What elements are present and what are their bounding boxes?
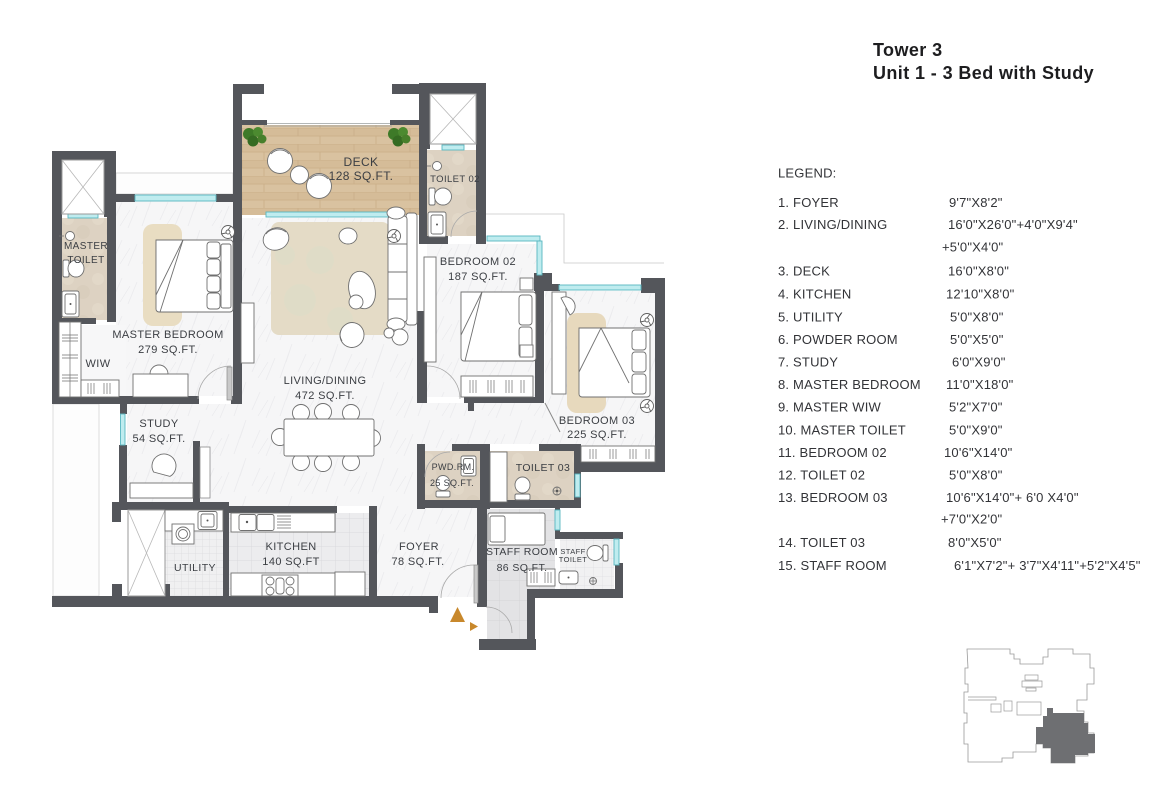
svg-text:TOILET 02: TOILET 02 (430, 174, 480, 185)
svg-text:13. BEDROOM 03: 13. BEDROOM 03 (778, 490, 888, 505)
svg-text:128 SQ.FT.: 128 SQ.FT. (329, 169, 394, 183)
svg-text:140 SQ.FT: 140 SQ.FT (262, 556, 319, 568)
svg-text:78 SQ.FT.: 78 SQ.FT. (391, 556, 444, 568)
svg-text:KITCHEN: KITCHEN (265, 541, 316, 553)
svg-text:5. UTILITY: 5. UTILITY (778, 309, 843, 324)
svg-text:12. TOILET 02: 12. TOILET 02 (778, 467, 865, 482)
svg-text:4. KITCHEN: 4. KITCHEN (778, 287, 852, 302)
svg-text:BEDROOM 03: BEDROOM 03 (559, 415, 635, 427)
svg-text:11'0"X18'0": 11'0"X18'0" (946, 377, 1014, 392)
svg-text:15. STAFF ROOM: 15. STAFF ROOM (778, 558, 887, 573)
svg-text:7. STUDY: 7. STUDY (778, 355, 838, 370)
svg-text:25 SQ.FT.: 25 SQ.FT. (430, 478, 474, 488)
svg-text:5'2"X7'0": 5'2"X7'0" (949, 399, 1003, 414)
svg-text:TOILET: TOILET (559, 555, 588, 564)
svg-text:10. MASTER TOILET: 10. MASTER TOILET (778, 422, 906, 437)
svg-text:6'0"X9'0": 6'0"X9'0" (952, 355, 1006, 370)
svg-text:STAFF ROOM: STAFF ROOM (486, 546, 558, 558)
svg-text:FOYER: FOYER (399, 541, 439, 553)
svg-text:86 SQ.FT.: 86 SQ.FT. (497, 562, 548, 574)
svg-text:6'1"X7'2"+ 3'7"X4'11"+5'2"X4'5: 6'1"X7'2"+ 3'7"X4'11"+5'2"X4'5" (954, 558, 1141, 573)
svg-text:+5'0"X4'0": +5'0"X4'0" (942, 239, 1004, 254)
svg-text:Unit 1 - 3 Bed with Study: Unit 1 - 3 Bed with Study (873, 63, 1094, 83)
svg-text:10'6"X14'0"+ 6'0 X4'0": 10'6"X14'0"+ 6'0 X4'0" (946, 490, 1079, 505)
svg-text:TOILET: TOILET (67, 255, 104, 266)
svg-text:187 SQ.FT.: 187 SQ.FT. (448, 271, 508, 283)
svg-text:MASTER: MASTER (64, 241, 108, 252)
svg-text:12'10"X8'0": 12'10"X8'0" (946, 287, 1015, 302)
svg-text:Tower 3: Tower 3 (873, 40, 942, 60)
svg-text:PWD.RM.: PWD.RM. (432, 462, 475, 472)
svg-text:6. POWDER ROOM: 6. POWDER ROOM (778, 332, 898, 347)
svg-text:UTILITY: UTILITY (174, 562, 216, 574)
svg-text:DECK: DECK (344, 155, 379, 169)
svg-text:8'0"X5'0": 8'0"X5'0" (948, 535, 1002, 550)
svg-text:5'0"X8'0": 5'0"X8'0" (950, 309, 1004, 324)
svg-text:MASTER BEDROOM: MASTER BEDROOM (112, 329, 223, 341)
svg-text:+7'0"X2'0": +7'0"X2'0" (941, 512, 1003, 527)
svg-text:BEDROOM 02: BEDROOM 02 (440, 256, 516, 268)
svg-text:8. MASTER BEDROOM: 8. MASTER BEDROOM (778, 377, 921, 392)
svg-text:14. TOILET 03: 14. TOILET 03 (778, 535, 865, 550)
svg-text:5'0"X5'0": 5'0"X5'0" (950, 332, 1004, 347)
svg-text:LIVING/DINING: LIVING/DINING (284, 375, 367, 387)
svg-text:10'6"X14'0": 10'6"X14'0" (944, 445, 1013, 460)
svg-text:279 SQ.FT.: 279 SQ.FT. (138, 344, 198, 356)
svg-text:54 SQ.FT.: 54 SQ.FT. (132, 433, 185, 445)
svg-text:472 SQ.FT.: 472 SQ.FT. (295, 390, 355, 402)
svg-text:LEGEND:: LEGEND: (778, 166, 836, 181)
svg-text:2. LIVING/DINING: 2. LIVING/DINING (778, 217, 887, 232)
svg-text:5'0"X9'0": 5'0"X9'0" (949, 422, 1003, 437)
svg-text:WIW: WIW (85, 358, 110, 370)
svg-text:STUDY: STUDY (139, 418, 179, 430)
svg-text:16'0"X26'0"+4'0"X9'4": 16'0"X26'0"+4'0"X9'4" (948, 217, 1078, 232)
svg-text:9'7"X8'2": 9'7"X8'2" (949, 195, 1003, 210)
svg-text:16'0"X8'0": 16'0"X8'0" (948, 264, 1009, 279)
svg-text:11. BEDROOM 02: 11. BEDROOM 02 (778, 445, 887, 460)
svg-text:3. DECK: 3. DECK (778, 264, 830, 279)
svg-text:5'0"X8'0": 5'0"X8'0" (949, 467, 1003, 482)
svg-text:225 SQ.FT.: 225 SQ.FT. (567, 429, 627, 441)
svg-text:TOILET 03: TOILET 03 (516, 462, 571, 474)
svg-text:1. FOYER: 1. FOYER (778, 195, 839, 210)
svg-text:9. MASTER WIW: 9. MASTER WIW (778, 399, 882, 414)
